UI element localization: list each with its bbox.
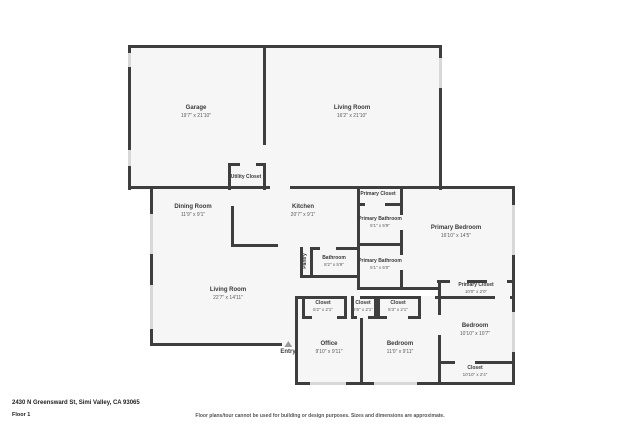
room-label-garage: Garage 19'7" x 21'10" [181,105,211,119]
wall-segment [263,163,266,190]
wall-segment [150,254,153,285]
wall-segment [439,45,442,58]
wall-segment [357,287,440,290]
wall-segment [512,255,515,290]
room-name: Closet [353,300,373,306]
wall-segment [438,361,455,364]
room-dims: 9'10" x 9'11" [315,349,342,355]
wall-segment [295,382,310,385]
wall-segment [337,316,347,319]
window-segment [374,382,417,385]
wall-segment [377,296,380,318]
room-name: Closet [388,300,408,306]
room-name: Primary Bathroom [358,216,402,222]
window-segment [512,312,515,352]
room-name: Bedroom [387,341,414,348]
disclaimer-text: Floor plans/tour cannot be used for buil… [0,413,640,419]
wall-segment [441,296,495,299]
wall-segment [150,189,153,214]
room-name: Primary Closet [458,282,493,288]
room-dims: 16'10" x 14'5" [431,233,481,239]
wall-segment [346,382,374,385]
room-dims: 16'2" x 21'10" [334,113,370,119]
wall-segment [417,382,515,385]
room-name: Living Room [334,105,370,112]
room-dims: 5'3" x 2'1" [388,307,408,312]
floor-plan: Garage 19'7" x 21'10" Living Room 16'2" … [0,0,640,427]
room-fill [128,45,442,190]
wall-segment [512,352,515,385]
room-name: Bedroom [460,323,490,330]
wall-segment [360,296,420,299]
room-dims: 8'2" x 5'9" [322,262,346,267]
room-name: Living Room [210,287,246,294]
wall-segment [263,45,266,145]
room-label-utility-closet: Utility Closet [229,174,263,180]
room-label-pantry: Pantry [302,253,308,269]
wall-segment [150,343,282,346]
window-segment [439,58,442,88]
room-label-primary-bathroom-upper: Primary Bathroom 5'1" x 5'9" [358,216,402,228]
room-dims: 11'0" x 9'11" [387,349,414,355]
room-dims: 11'9" x 9'1" [174,212,211,218]
wall-segment [302,316,312,319]
room-dims: 5'1" x 5'9" [358,223,402,228]
room-name: Garage [181,105,211,112]
room-label-kitchen: Kitchen 20'7" x 9'1" [291,204,316,218]
room-dims: 10'0" x 2'0" [458,289,493,294]
room-dims: 5'1" x 6'0" [358,265,402,270]
wall-segment [344,296,347,318]
wall-segment [300,275,357,278]
wall-segment [357,203,365,206]
room-label-bedroom-middle: Bedroom 11'0" x 9'11" [387,341,414,355]
room-dims: 5'2" x 2'1" [313,307,333,312]
wall-segment [438,335,441,385]
room-name: Pantry [302,253,308,269]
room-label-living-room-top: Living Room 16'2" x 21'10" [334,105,370,119]
room-name: Office [315,341,342,348]
window-segment [512,205,515,255]
wall-segment [360,318,363,382]
room-label-bathroom: Bathroom 8'2" x 5'9" [322,255,346,267]
room-dims: 10'10" x 2'4" [463,372,488,377]
wall-segment [231,244,278,247]
room-label-living-room-main: Living Room 22'7" x 14'11" [210,287,246,301]
room-name: Closet [313,300,333,306]
wall-segment [310,247,313,278]
room-name: Dining Room [174,204,211,211]
wall-segment [312,247,320,250]
wall-segment [385,203,400,206]
wall-segment [231,206,234,247]
wall-segment [351,316,357,319]
window-segment [150,285,153,329]
room-name: Bathroom [322,255,346,261]
wall-segment [128,45,442,48]
wall-segment [357,243,403,246]
room-dims: 10'10" x 10'7" [460,331,490,337]
room-name: Primary Closet [356,191,400,197]
window-segment [128,53,131,67]
wall-segment [418,296,421,318]
room-label-closet-bottom-right: Closet 10'10" x 2'4" [463,365,488,377]
room-dims: 20'7" x 9'1" [291,212,316,218]
entry-label: Entry [280,349,295,355]
window-segment [150,214,153,254]
room-label-dining-room: Dining Room 11'9" x 9'1" [174,204,211,218]
wall-segment [336,247,357,250]
wall-segment [368,316,377,319]
room-label-primary-bathroom-lower: Primary Bathroom 5'1" x 6'0" [358,258,402,270]
wall-segment [475,361,515,364]
room-fill [150,296,295,346]
room-name: Primary Bathroom [358,258,402,264]
wall-segment [228,163,240,166]
room-dims: 2'6" x 2'1" [353,307,373,312]
room-label-closet-middle: Closet 2'6" x 2'1" [353,300,373,312]
room-dims: 19'7" x 21'10" [181,113,211,119]
room-label-office: Office 9'10" x 9'11" [315,341,342,355]
room-label-bedroom-right: Bedroom 10'10" x 10'7" [460,323,490,337]
room-name: Primary Bedroom [431,225,481,232]
wall-segment [400,186,403,215]
room-label-closet-left: Closet 5'2" x 2'1" [313,300,333,312]
address-text: 2430 N Greensward St, Simi Valley, CA 93… [12,400,140,406]
wall-segment [512,287,515,312]
wall-segment [128,67,131,150]
wall-segment [435,296,443,299]
wall-segment [302,296,305,318]
wall-segment [377,316,387,319]
room-label-primary-closet-lower: Primary Closet 10'0" x 2'0" [458,282,493,294]
wall-segment [357,186,515,189]
wall-segment [512,186,515,205]
window-segment [128,150,131,166]
wall-segment [507,280,515,283]
room-name: Closet [463,365,488,371]
window-segment [310,382,346,385]
wall-segment [357,186,360,287]
room-label-closet-right-small: Closet 5'3" x 2'1" [388,300,408,312]
entry-marker: Entry [280,341,295,355]
room-name: Kitchen [291,204,316,211]
entry-arrow-icon [284,341,292,347]
room-label-primary-closet-top: Primary Closet [356,191,400,197]
wall-segment [408,316,421,319]
wall-segment [128,45,131,53]
wall-segment [400,270,403,287]
room-name: Utility Closet [229,174,263,180]
room-dims: 22'7" x 14'11" [210,295,246,301]
wall-segment [439,88,442,190]
room-label-primary-bedroom: Primary Bedroom 16'10" x 14'5" [431,225,481,239]
